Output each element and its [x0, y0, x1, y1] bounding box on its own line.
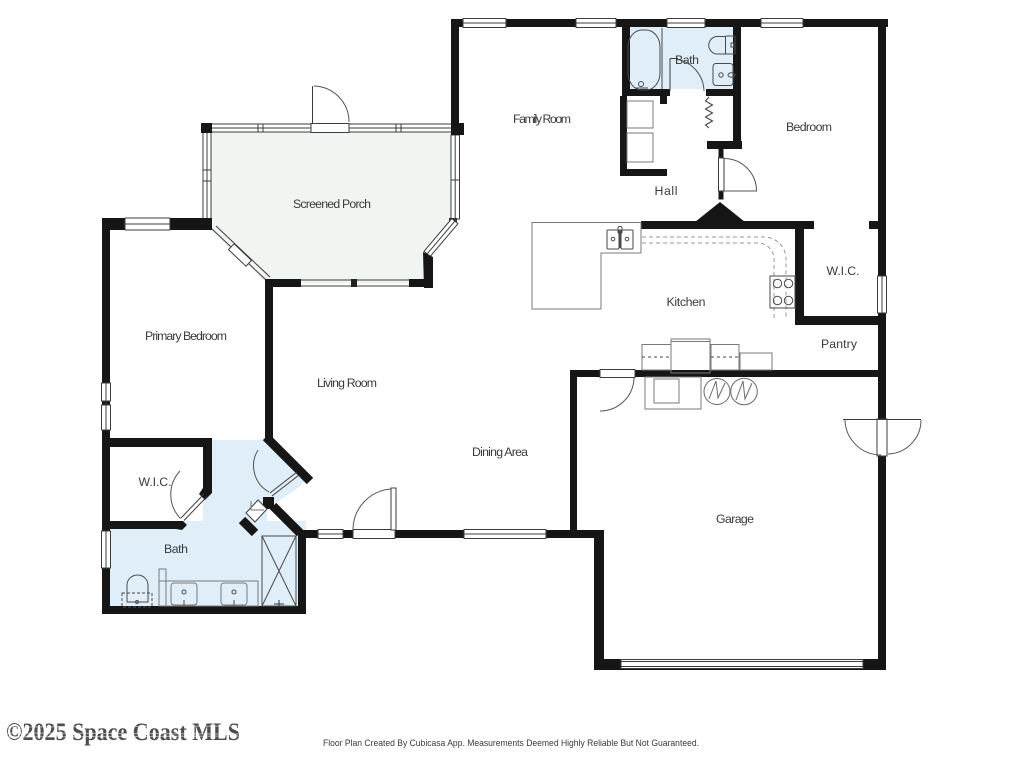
svg-text:Hall: Hall: [655, 184, 678, 198]
svg-text:Bedroom: Bedroom: [786, 120, 832, 134]
svg-text:Bath: Bath: [675, 53, 699, 67]
svg-text:Floor Plan Created By Cubicasa: Floor Plan Created By Cubicasa App. Meas…: [323, 738, 699, 748]
svg-text:Kitchen: Kitchen: [667, 295, 706, 309]
svg-text:Family Room: Family Room: [513, 112, 571, 126]
svg-text:W.I.C.: W.I.C.: [827, 264, 860, 278]
svg-text:Bath: Bath: [164, 542, 188, 556]
svg-text:W.I.C.: W.I.C.: [139, 475, 172, 489]
svg-text:Living Room: Living Room: [317, 376, 377, 390]
svg-text:Pantry: Pantry: [821, 337, 858, 351]
svg-text:Primary Bedroom: Primary Bedroom: [145, 329, 227, 343]
svg-text:©2025 Space Coast MLS: ©2025 Space Coast MLS: [6, 719, 240, 746]
svg-text:Screened Porch: Screened Porch: [293, 197, 371, 211]
svg-text:Dining Area: Dining Area: [472, 445, 528, 459]
svg-text:Garage: Garage: [716, 512, 754, 526]
